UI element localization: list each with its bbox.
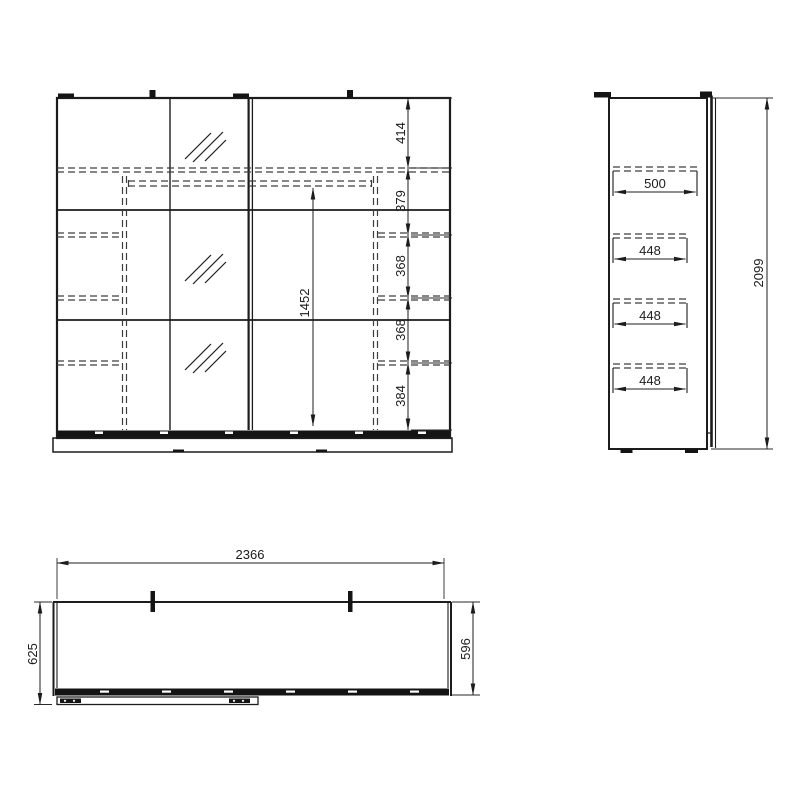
dim-label-depth-with-door: 625 (25, 643, 40, 665)
mirror-hatch-bottom (185, 343, 226, 373)
front-base-plinth (53, 438, 452, 452)
front-top-guide-marks (58, 90, 353, 98)
dim-label-shelf-4: 448 (639, 373, 661, 388)
dim-label-overall-height: 2099 (751, 259, 766, 288)
dim-label-front-seg-3: 368 (393, 255, 408, 277)
dim-label-hanging-height: 1452 (297, 289, 312, 318)
dim-label-shelf-2: 448 (639, 243, 661, 258)
plan-sliding-door (57, 697, 258, 705)
front-view: 414 379 368 368 384 1452 (53, 90, 452, 452)
foot-mark-right (685, 449, 698, 453)
dim-label-shelf-1: 500 (644, 176, 666, 191)
side-height-dimension: 2099 (711, 98, 773, 449)
front-dimension-chain: 414 379 368 368 384 (393, 98, 452, 430)
dim-label-overall-width: 2366 (236, 547, 265, 562)
side-shelf-1: 500 (613, 167, 697, 196)
front-view-outline (57, 98, 450, 438)
technical-drawing-page: 414 379 368 368 384 1452 (0, 0, 800, 800)
plan-depth-left-dimension: 625 (25, 602, 52, 705)
dim-label-shelf-3: 448 (639, 308, 661, 323)
dim-label-carcass-depth: 596 (458, 638, 473, 660)
door-roller-left (60, 699, 81, 704)
side-shelf-3: 448 (613, 299, 687, 328)
dim-label-front-seg-2: 379 (393, 190, 408, 212)
foot-mark-left (621, 449, 633, 453)
wall-bracket-mark (594, 92, 611, 98)
plan-width-dimension: 2366 (57, 547, 444, 599)
dim-label-front-seg-4: 368 (393, 319, 408, 341)
wardrobe-technical-drawing: 414 379 368 368 384 1452 (0, 0, 800, 800)
mirror-hatch-middle (185, 254, 226, 284)
front-hanging-height-dimension: 1452 (297, 188, 313, 426)
side-shelf-2: 448 (613, 234, 687, 263)
dim-label-front-seg-5: 384 (393, 385, 408, 407)
plan-view-outline (53, 602, 451, 696)
plan-view: 2366 (25, 547, 480, 705)
side-view: 500 448 448 448 (594, 92, 773, 454)
door-roller-right (229, 699, 250, 704)
front-bottom-rail (58, 431, 450, 438)
plan-rail-band (55, 689, 449, 696)
front-hidden-interior-lines (57, 168, 450, 430)
side-view-outline (594, 92, 716, 454)
side-shelf-4: 448 (613, 364, 687, 393)
door-top-guide-mark (700, 92, 712, 98)
plan-depth-right-dimension: 596 (452, 602, 480, 695)
dim-label-front-seg-1: 414 (393, 122, 408, 144)
mirror-hatch-top (185, 132, 226, 162)
